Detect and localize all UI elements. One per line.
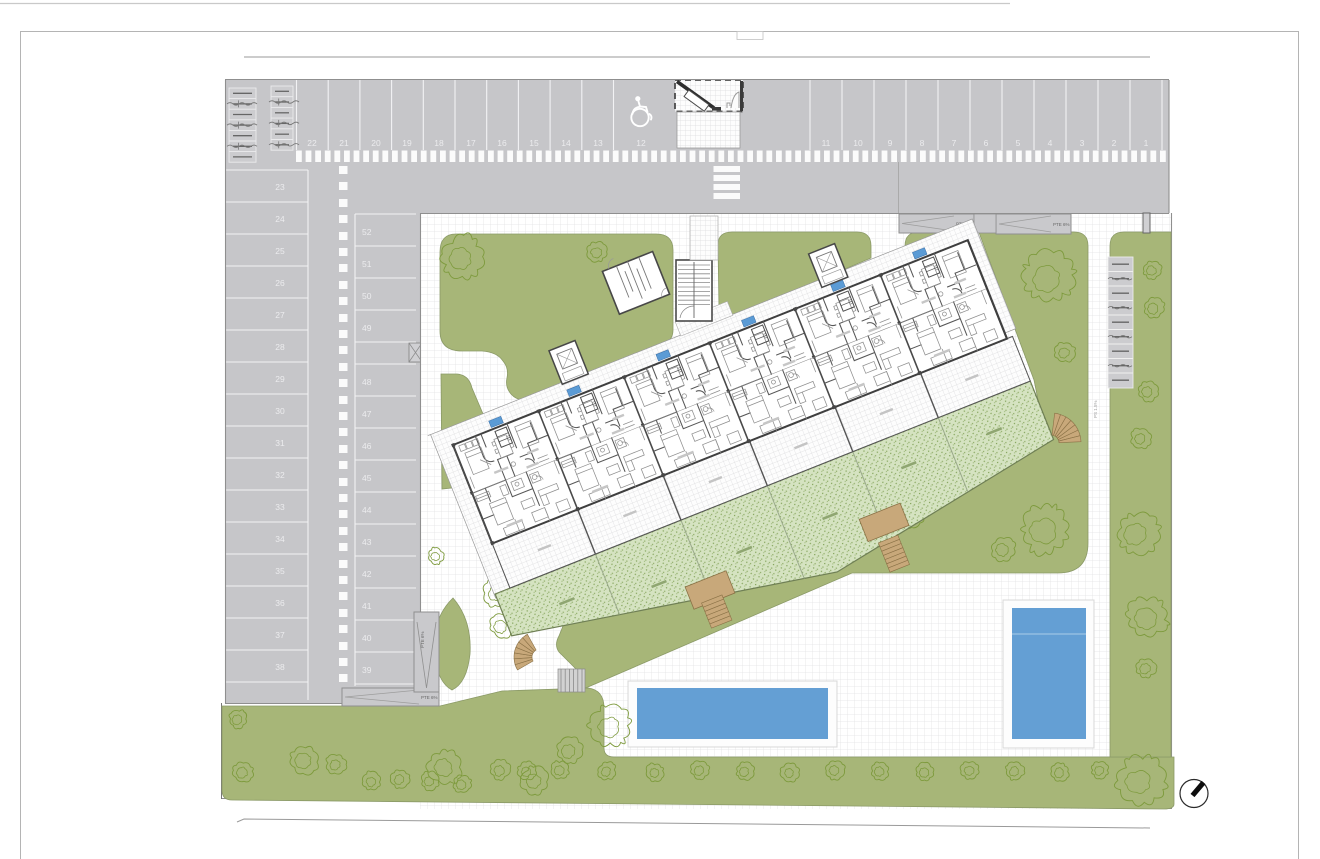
- svg-text:26: 26: [275, 278, 285, 288]
- svg-text:23: 23: [275, 182, 285, 192]
- svg-text:30: 30: [275, 406, 285, 416]
- svg-text:24: 24: [275, 214, 285, 224]
- svg-text:48: 48: [362, 377, 372, 387]
- svg-text:7: 7: [952, 138, 957, 148]
- svg-text:20: 20: [371, 138, 381, 148]
- svg-text:10: 10: [853, 138, 863, 148]
- svg-text:PTE 6%: PTE 6%: [421, 695, 438, 700]
- svg-text:17: 17: [466, 138, 476, 148]
- svg-text:12: 12: [636, 138, 646, 148]
- svg-text:32: 32: [275, 470, 285, 480]
- svg-text:13: 13: [593, 138, 603, 148]
- svg-text:6: 6: [984, 138, 989, 148]
- svg-text:19: 19: [402, 138, 412, 148]
- svg-text:3: 3: [1080, 138, 1085, 148]
- svg-text:22: 22: [307, 138, 317, 148]
- svg-text:45: 45: [362, 473, 372, 483]
- svg-text:44: 44: [362, 505, 372, 515]
- svg-text:PTE 6%: PTE 6%: [1053, 222, 1070, 227]
- svg-text:31: 31: [275, 438, 285, 448]
- svg-text:8: 8: [920, 138, 925, 148]
- svg-text:PS 1.5%: PS 1.5%: [1093, 400, 1098, 418]
- svg-text:33: 33: [275, 502, 285, 512]
- svg-text:50: 50: [362, 291, 372, 301]
- svg-text:35: 35: [275, 566, 285, 576]
- svg-text:21: 21: [339, 138, 349, 148]
- svg-text:11: 11: [822, 138, 831, 148]
- svg-text:46: 46: [362, 441, 372, 451]
- svg-text:36: 36: [275, 598, 285, 608]
- svg-text:27: 27: [275, 310, 285, 320]
- svg-text:5: 5: [1016, 138, 1021, 148]
- svg-text:42: 42: [362, 569, 372, 579]
- svg-text:43: 43: [362, 537, 372, 547]
- svg-text:47: 47: [362, 409, 372, 419]
- svg-text:39: 39: [362, 665, 372, 675]
- svg-text:9: 9: [888, 138, 893, 148]
- svg-text:51: 51: [362, 259, 372, 269]
- svg-text:28: 28: [275, 342, 285, 352]
- svg-text:34: 34: [275, 534, 285, 544]
- svg-text:14: 14: [561, 138, 571, 148]
- svg-text:25: 25: [275, 246, 285, 256]
- svg-text:49: 49: [362, 323, 372, 333]
- svg-text:41: 41: [362, 601, 372, 611]
- svg-text:15: 15: [529, 138, 539, 148]
- svg-text:29: 29: [275, 374, 285, 384]
- svg-text:38: 38: [275, 662, 285, 672]
- svg-text:4: 4: [1048, 138, 1053, 148]
- svg-text:40: 40: [362, 633, 372, 643]
- svg-text:16: 16: [497, 138, 507, 148]
- svg-text:1: 1: [1144, 138, 1149, 148]
- svg-text:18: 18: [434, 138, 444, 148]
- svg-text:2: 2: [1112, 138, 1117, 148]
- svg-text:37: 37: [275, 630, 285, 640]
- svg-text:52: 52: [362, 227, 372, 237]
- svg-text:PTE 6%: PTE 6%: [420, 631, 425, 648]
